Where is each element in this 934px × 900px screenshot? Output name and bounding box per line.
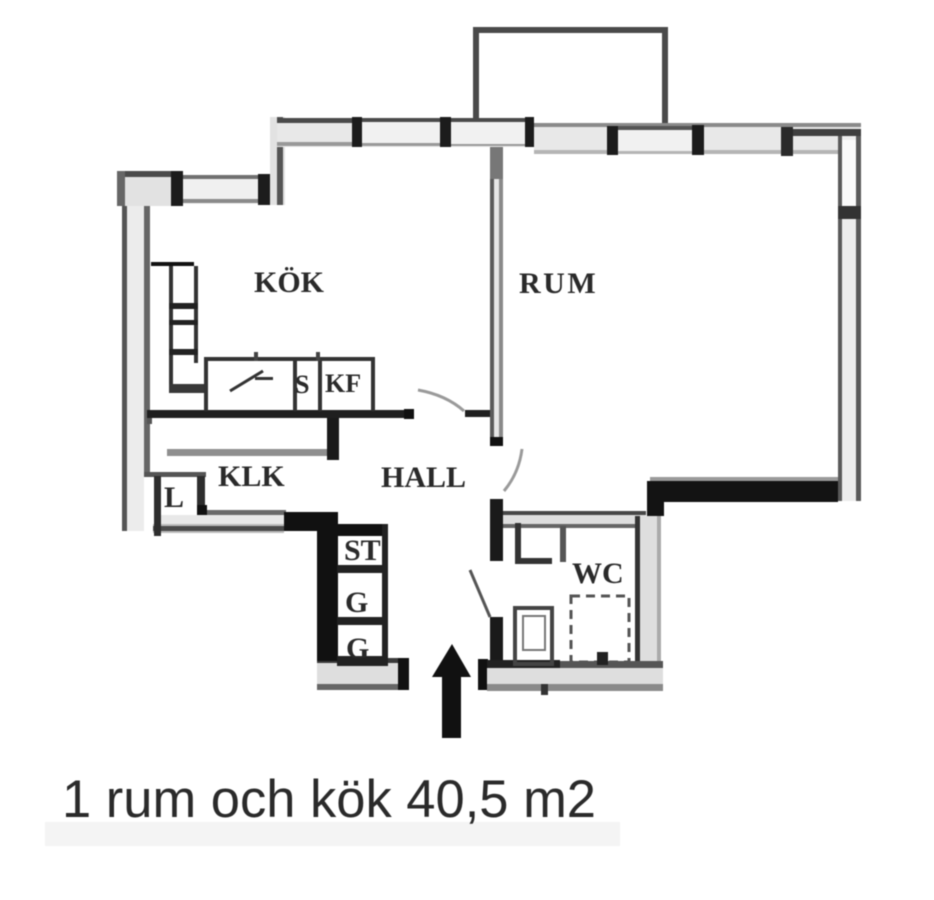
svg-text:S: S: [295, 370, 309, 399]
svg-text:HALL: HALL: [381, 461, 466, 494]
svg-text:1 rum och kök 40,5 m2: 1 rum och kök 40,5 m2: [62, 770, 596, 829]
svg-text:ST: ST: [344, 534, 381, 567]
svg-text:WC: WC: [572, 557, 624, 590]
svg-text:KLK: KLK: [218, 460, 285, 493]
svg-text:RUM: RUM: [519, 267, 598, 300]
svg-text:KF: KF: [325, 369, 361, 398]
svg-text:G: G: [346, 632, 369, 665]
svg-text:KÖK: KÖK: [254, 266, 325, 299]
svg-text:G: G: [345, 586, 368, 619]
svg-text:L: L: [164, 481, 184, 514]
